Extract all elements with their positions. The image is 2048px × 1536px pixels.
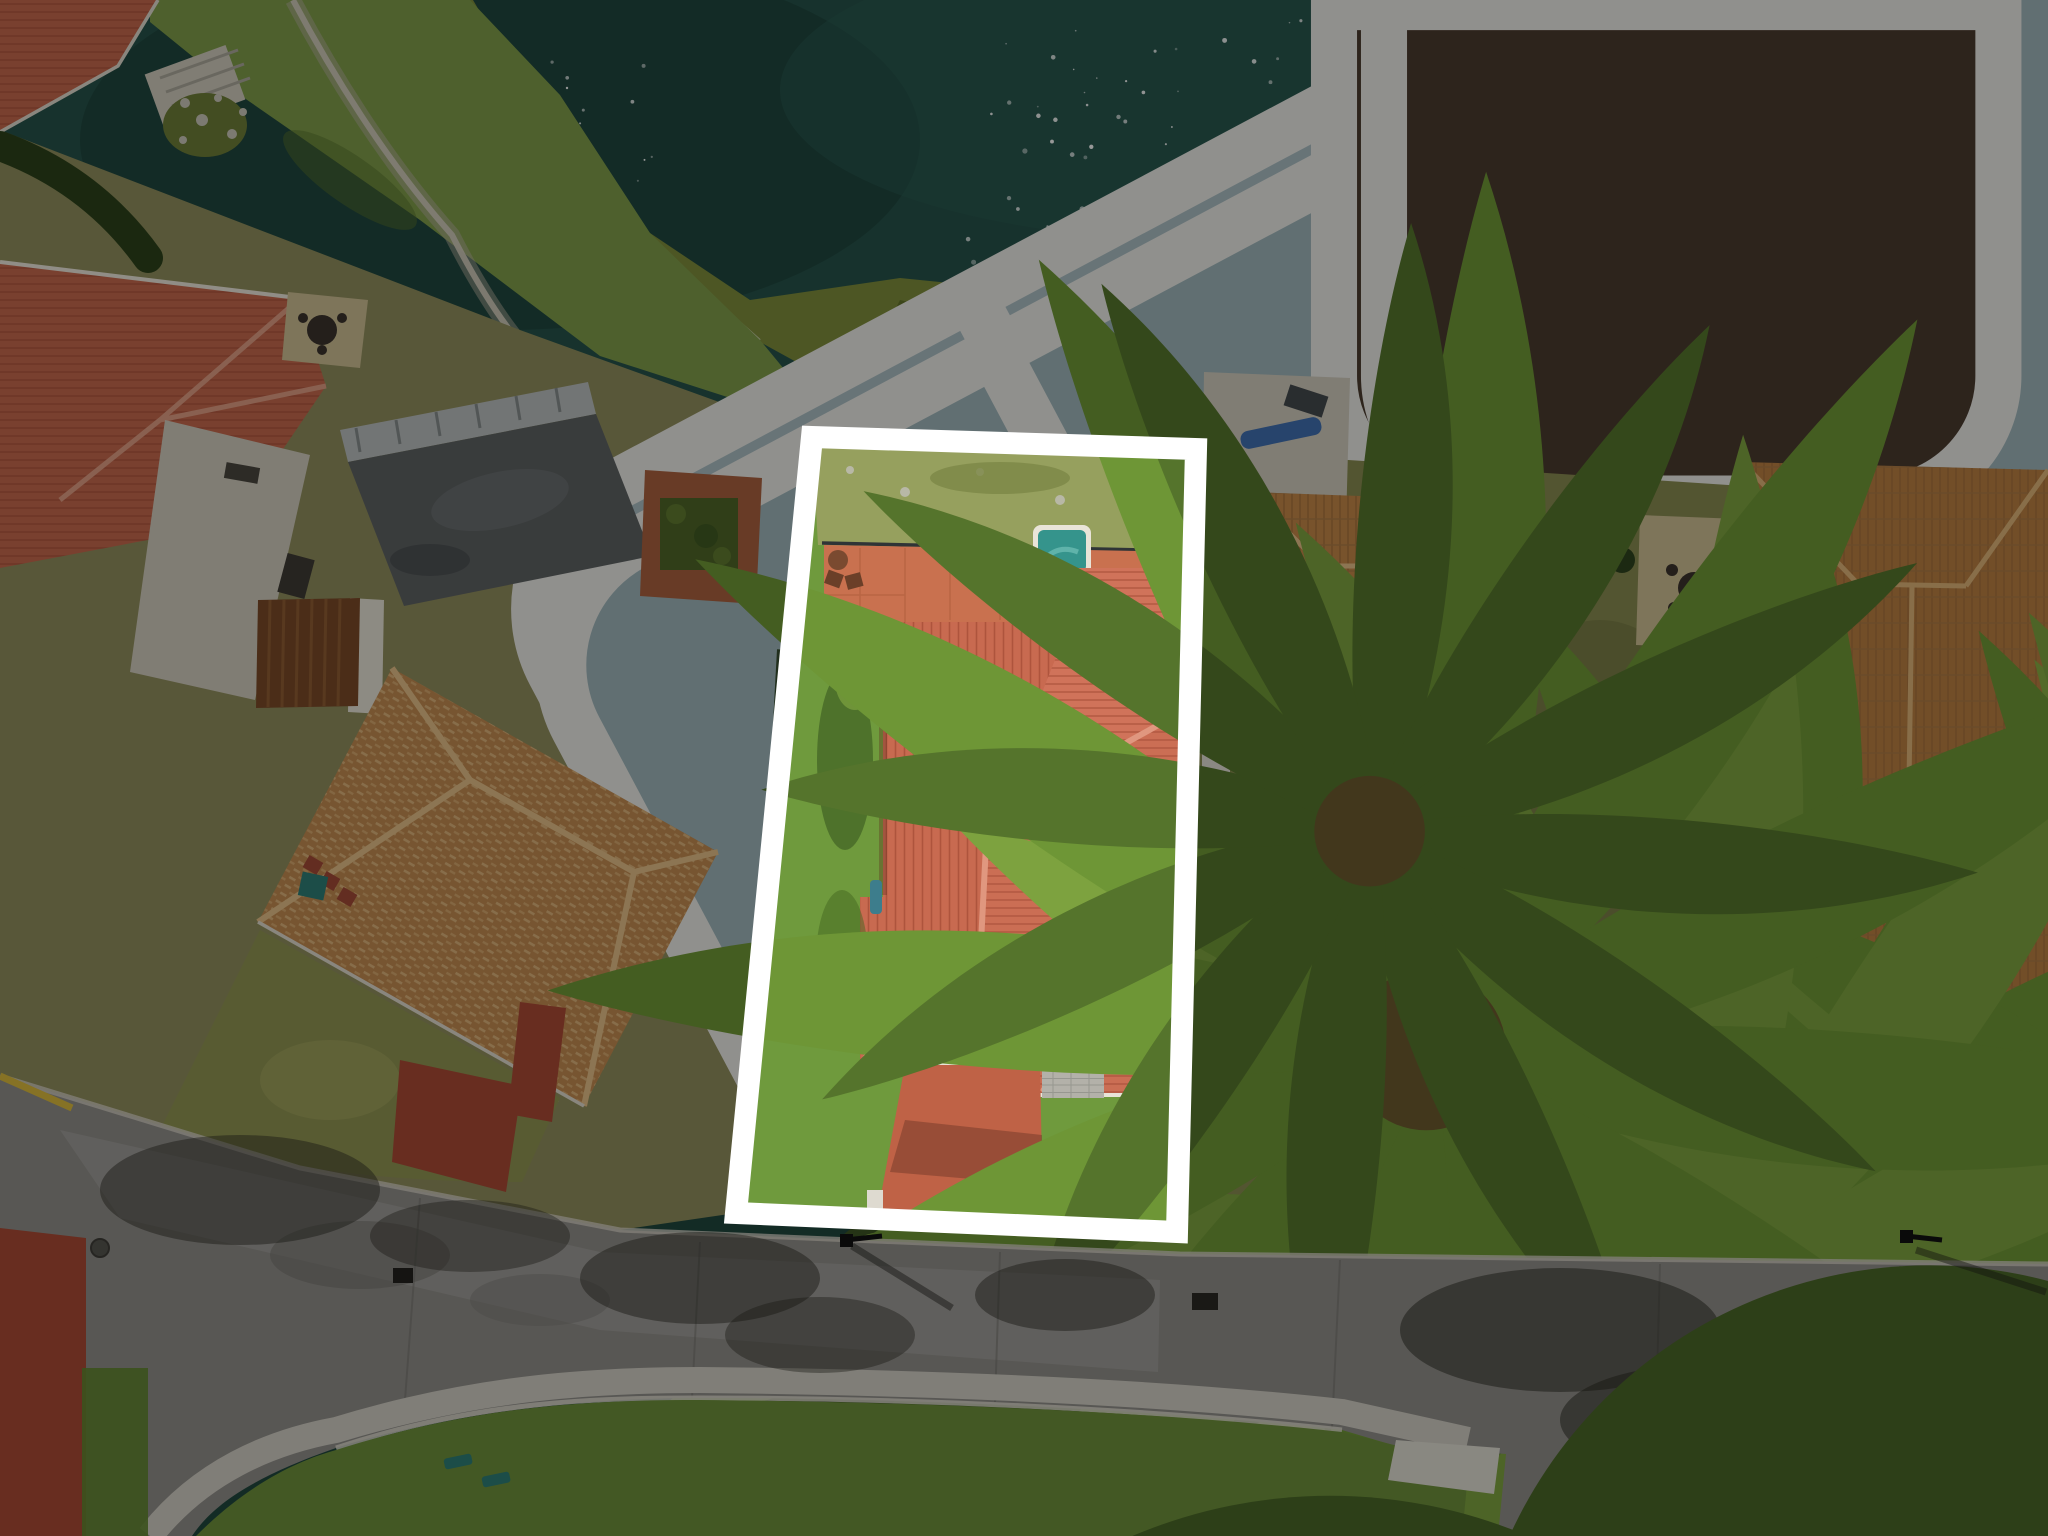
aerial-photo: [0, 0, 2048, 1536]
utility-box: [867, 1190, 883, 1210]
aerial-photo-canvas: [0, 0, 2048, 1536]
shore-scrub: [930, 462, 1070, 494]
kayak: [870, 880, 882, 914]
bistro-table: [828, 550, 848, 570]
